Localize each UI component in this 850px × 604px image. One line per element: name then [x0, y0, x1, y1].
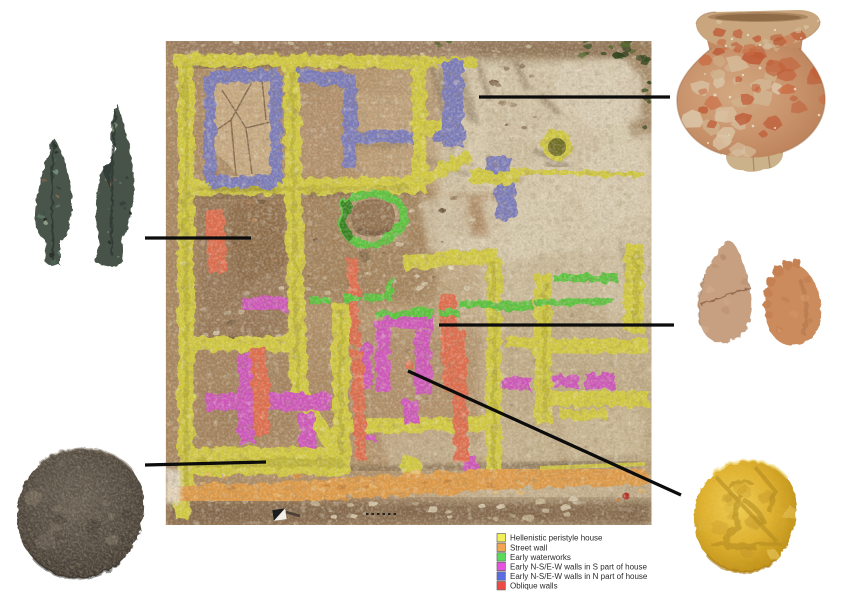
svg-text:Oblique walls: Oblique walls [510, 582, 558, 591]
svg-text:Street wall: Street wall [510, 543, 548, 552]
svg-text:Early N-S/E-W walls in S part: Early N-S/E-W walls in S part of house [510, 563, 647, 572]
svg-text:Early N-S/E-W walls in N part: Early N-S/E-W walls in N part of house [510, 572, 648, 581]
svg-text:Hellenistic peristyle house: Hellenistic peristyle house [510, 534, 603, 543]
svg-text:Early waterworks: Early waterworks [510, 553, 571, 562]
